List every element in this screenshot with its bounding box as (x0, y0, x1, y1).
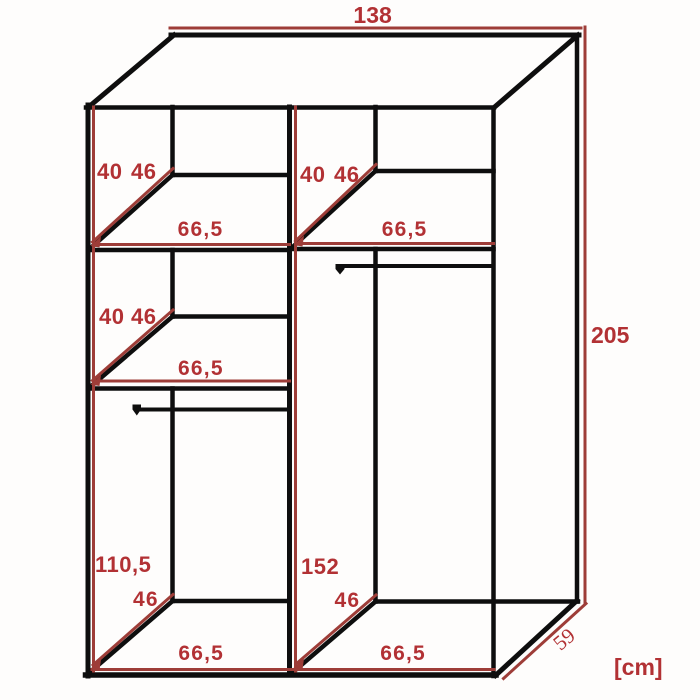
svg-text:40: 40 (99, 304, 124, 329)
svg-text:66,5: 66,5 (178, 218, 224, 241)
svg-text:66,5: 66,5 (178, 357, 224, 380)
svg-text:138: 138 (353, 2, 392, 28)
svg-text:[cm]: [cm] (614, 654, 663, 680)
svg-text:46: 46 (131, 159, 156, 184)
svg-text:110,5: 110,5 (95, 552, 151, 577)
svg-text:66,5: 66,5 (178, 642, 224, 665)
svg-text:46: 46 (334, 162, 359, 187)
svg-text:205: 205 (591, 322, 630, 348)
svg-text:152: 152 (301, 554, 339, 579)
svg-text:46: 46 (131, 304, 156, 329)
svg-text:66,5: 66,5 (382, 218, 428, 241)
svg-text:46: 46 (133, 588, 159, 611)
svg-text:40: 40 (97, 159, 122, 184)
svg-text:40: 40 (300, 162, 325, 187)
svg-text:46: 46 (335, 589, 361, 612)
svg-text:66,5: 66,5 (380, 642, 426, 665)
